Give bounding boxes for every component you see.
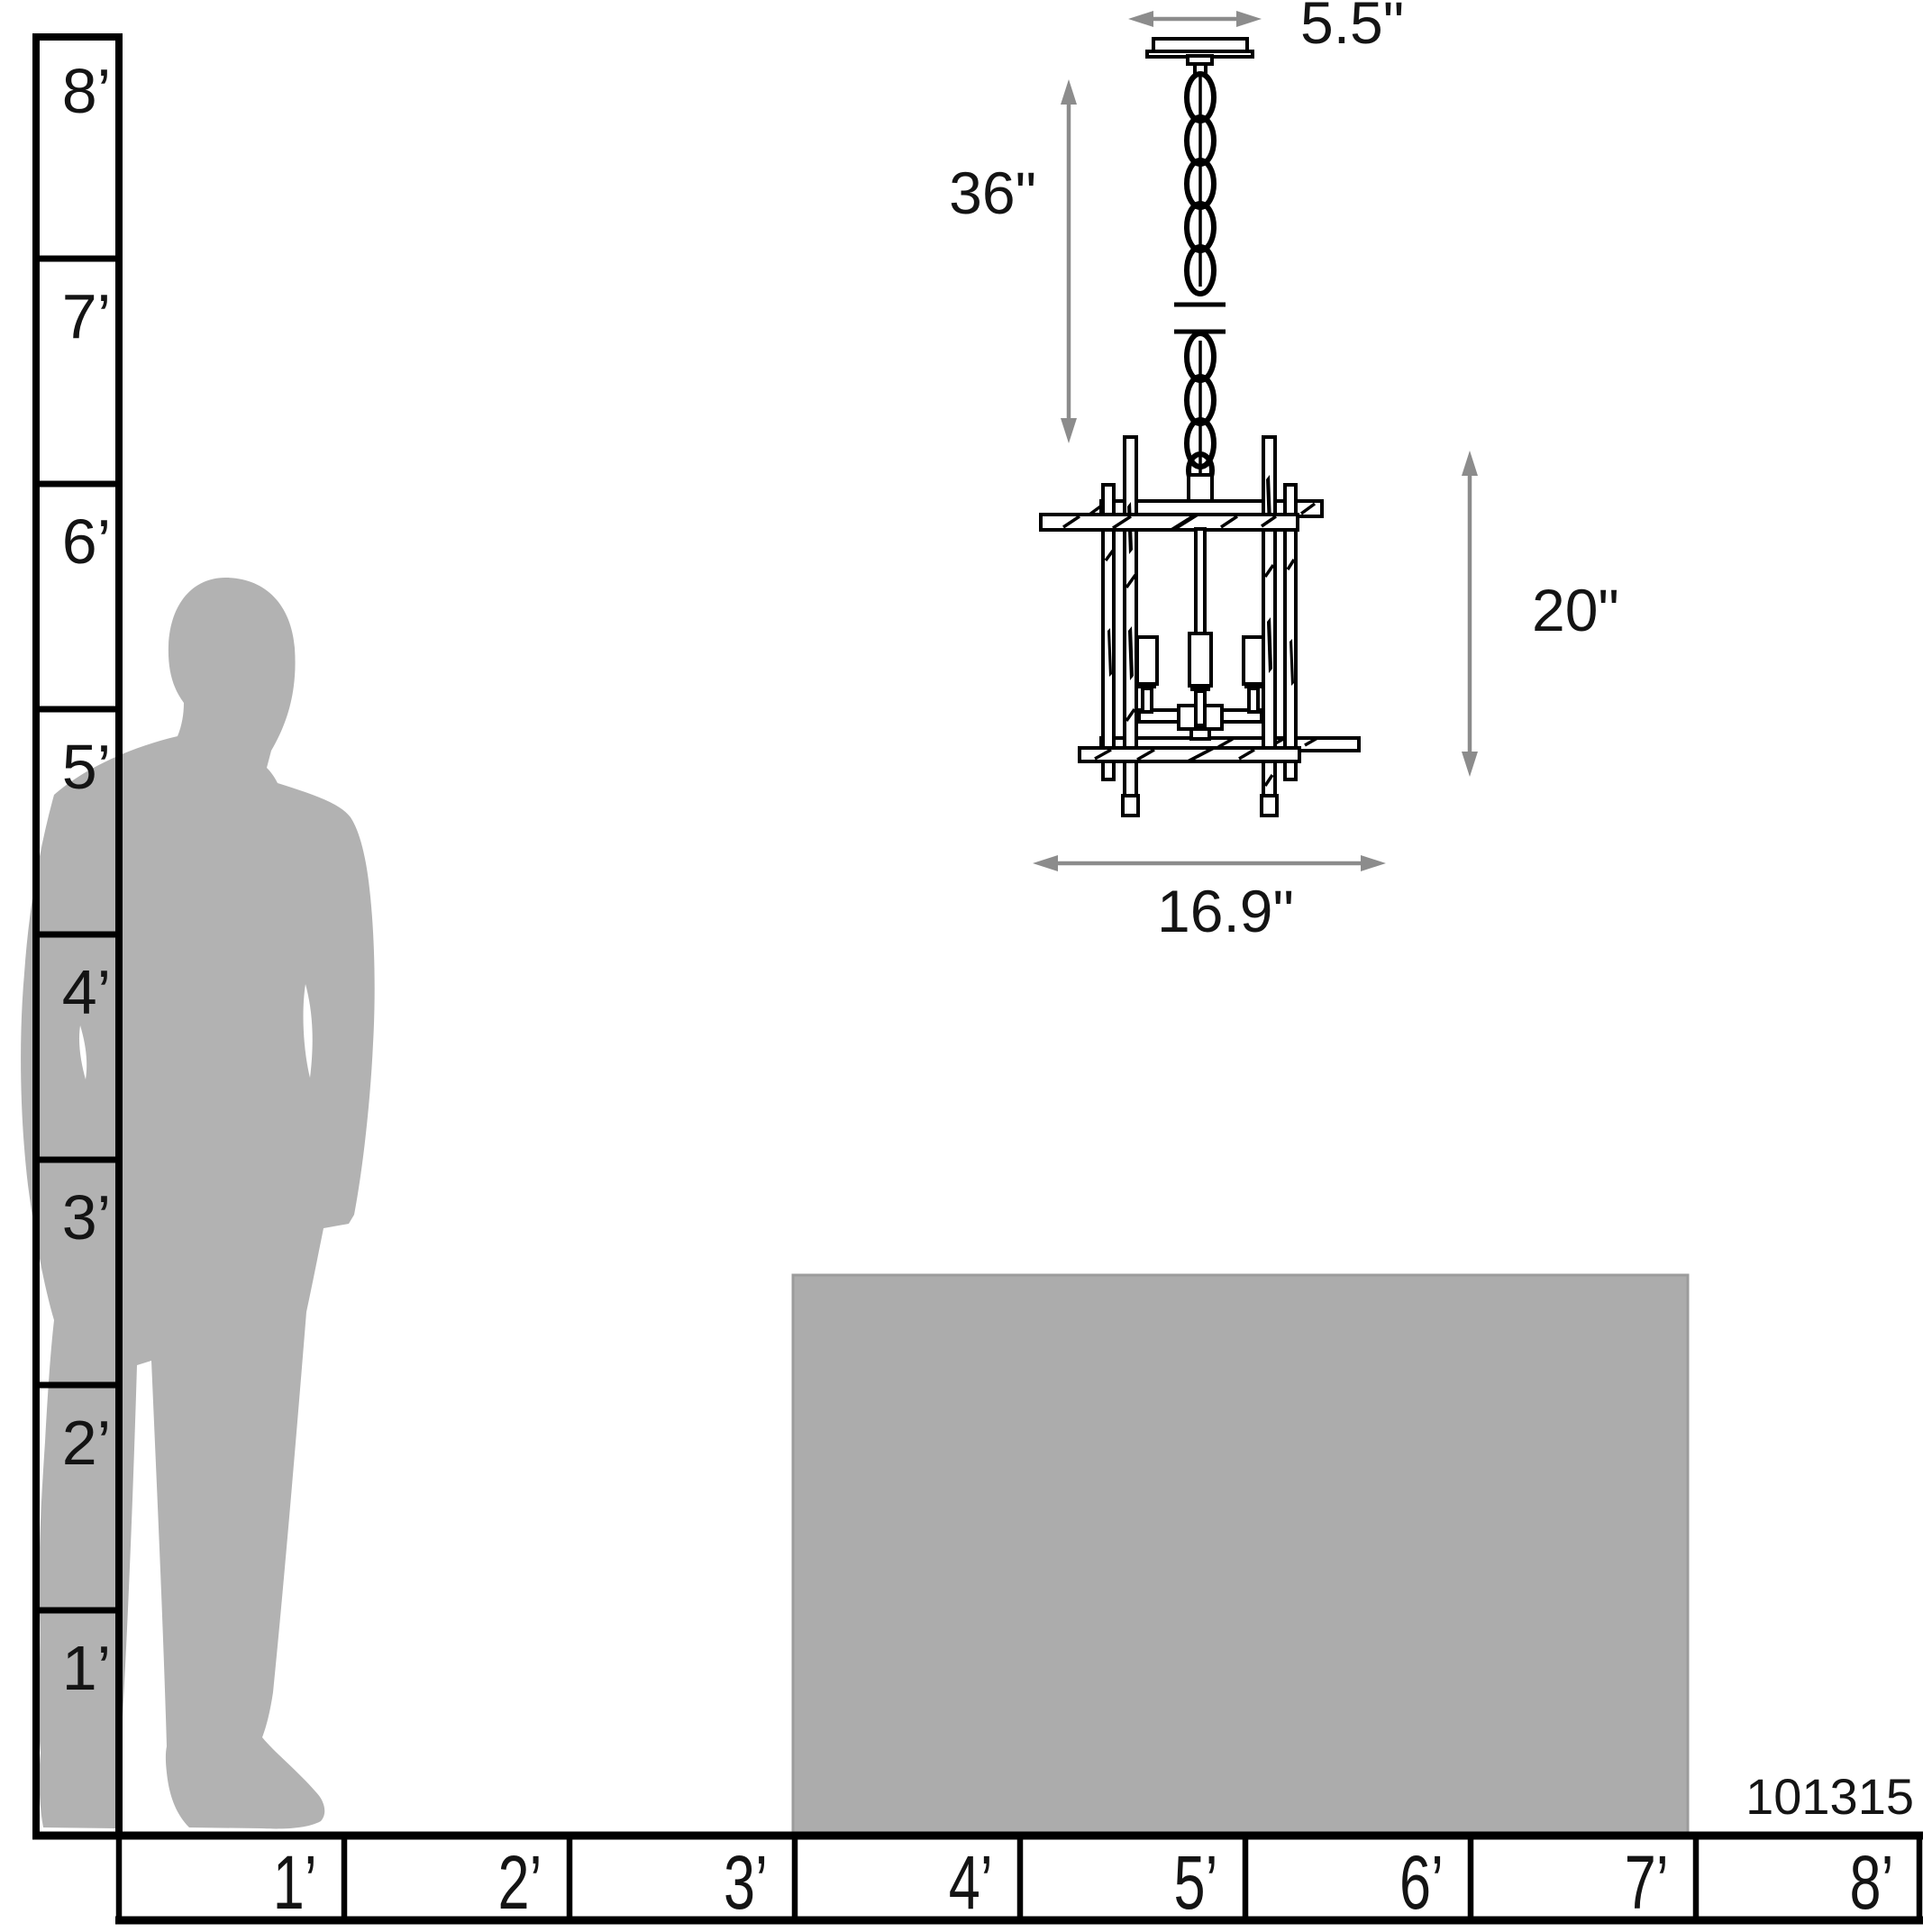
ceiling-canopy — [1147, 39, 1253, 75]
candle-sleeve-center — [1189, 633, 1211, 686]
table-block — [793, 1275, 1688, 1836]
chain-length-label: 36" — [949, 159, 1036, 226]
width-label-7ft: 7’ — [1625, 1840, 1669, 1925]
width-label-2ft: 2’ — [497, 1840, 542, 1925]
chain-stem-connector — [1189, 475, 1212, 502]
fixture-height-label: 20" — [1532, 577, 1619, 643]
candle-sleeve-right — [1244, 637, 1263, 684]
canopy-width-label: 5.5" — [1300, 0, 1404, 56]
chandelier-size-diagram: 8’ 7’ 6’ 5’ 4’ 3’ 2’ 1’ 1’ 2’ 3’ 4’ 5’ 6… — [0, 0, 1932, 1932]
height-label-8ft: 8’ — [62, 56, 111, 126]
height-label-2ft: 2’ — [62, 1408, 111, 1478]
height-label-3ft: 3’ — [62, 1182, 111, 1253]
product-number: 101315 — [1745, 1768, 1914, 1825]
candle-cluster — [1137, 529, 1263, 739]
width-label-5ft: 5’ — [1173, 1840, 1217, 1925]
width-label-1ft: 1’ — [273, 1840, 317, 1925]
dimension-annotations: 5.5" 36" 20" 16.9" — [949, 0, 1619, 944]
height-label-6ft: 6’ — [62, 506, 111, 577]
diagram-canvas: 8’ 7’ 6’ 5’ 4’ 3’ 2’ 1’ 1’ 2’ 3’ 4’ 5’ 6… — [0, 0, 1932, 1932]
canopy-width-arrow — [1128, 11, 1262, 27]
fixture-width-label: 16.9" — [1157, 878, 1294, 944]
fixture-width-arrow — [1033, 855, 1386, 871]
chain-length-arrow — [1061, 79, 1077, 443]
height-label-1ft: 1’ — [62, 1633, 111, 1703]
width-label-3ft: 3’ — [724, 1840, 768, 1925]
width-label-4ft: 4’ — [949, 1840, 993, 1925]
fixture-height-arrow — [1462, 451, 1478, 777]
chandelier-drawing — [1041, 39, 1359, 816]
candle-tube-center — [1196, 691, 1205, 725]
hanging-chain — [1174, 74, 1226, 502]
height-label-5ft: 5’ — [62, 732, 111, 802]
width-label-6ft: 6’ — [1399, 1840, 1444, 1925]
height-label-4ft: 4’ — [62, 957, 111, 1027]
candle-tube-left — [1143, 688, 1152, 712]
width-label-8ft: 8’ — [1849, 1840, 1893, 1925]
candle-hub-finial — [1191, 729, 1209, 739]
candle-tube-right — [1249, 688, 1258, 712]
center-stem — [1196, 529, 1205, 635]
candle-sleeve-left — [1137, 637, 1157, 684]
height-label-7ft: 7’ — [62, 281, 111, 351]
width-ruler: 1’ 2’ 3’ 4’ 5’ 6’ 7’ 8’ — [32, 1836, 1923, 1925]
